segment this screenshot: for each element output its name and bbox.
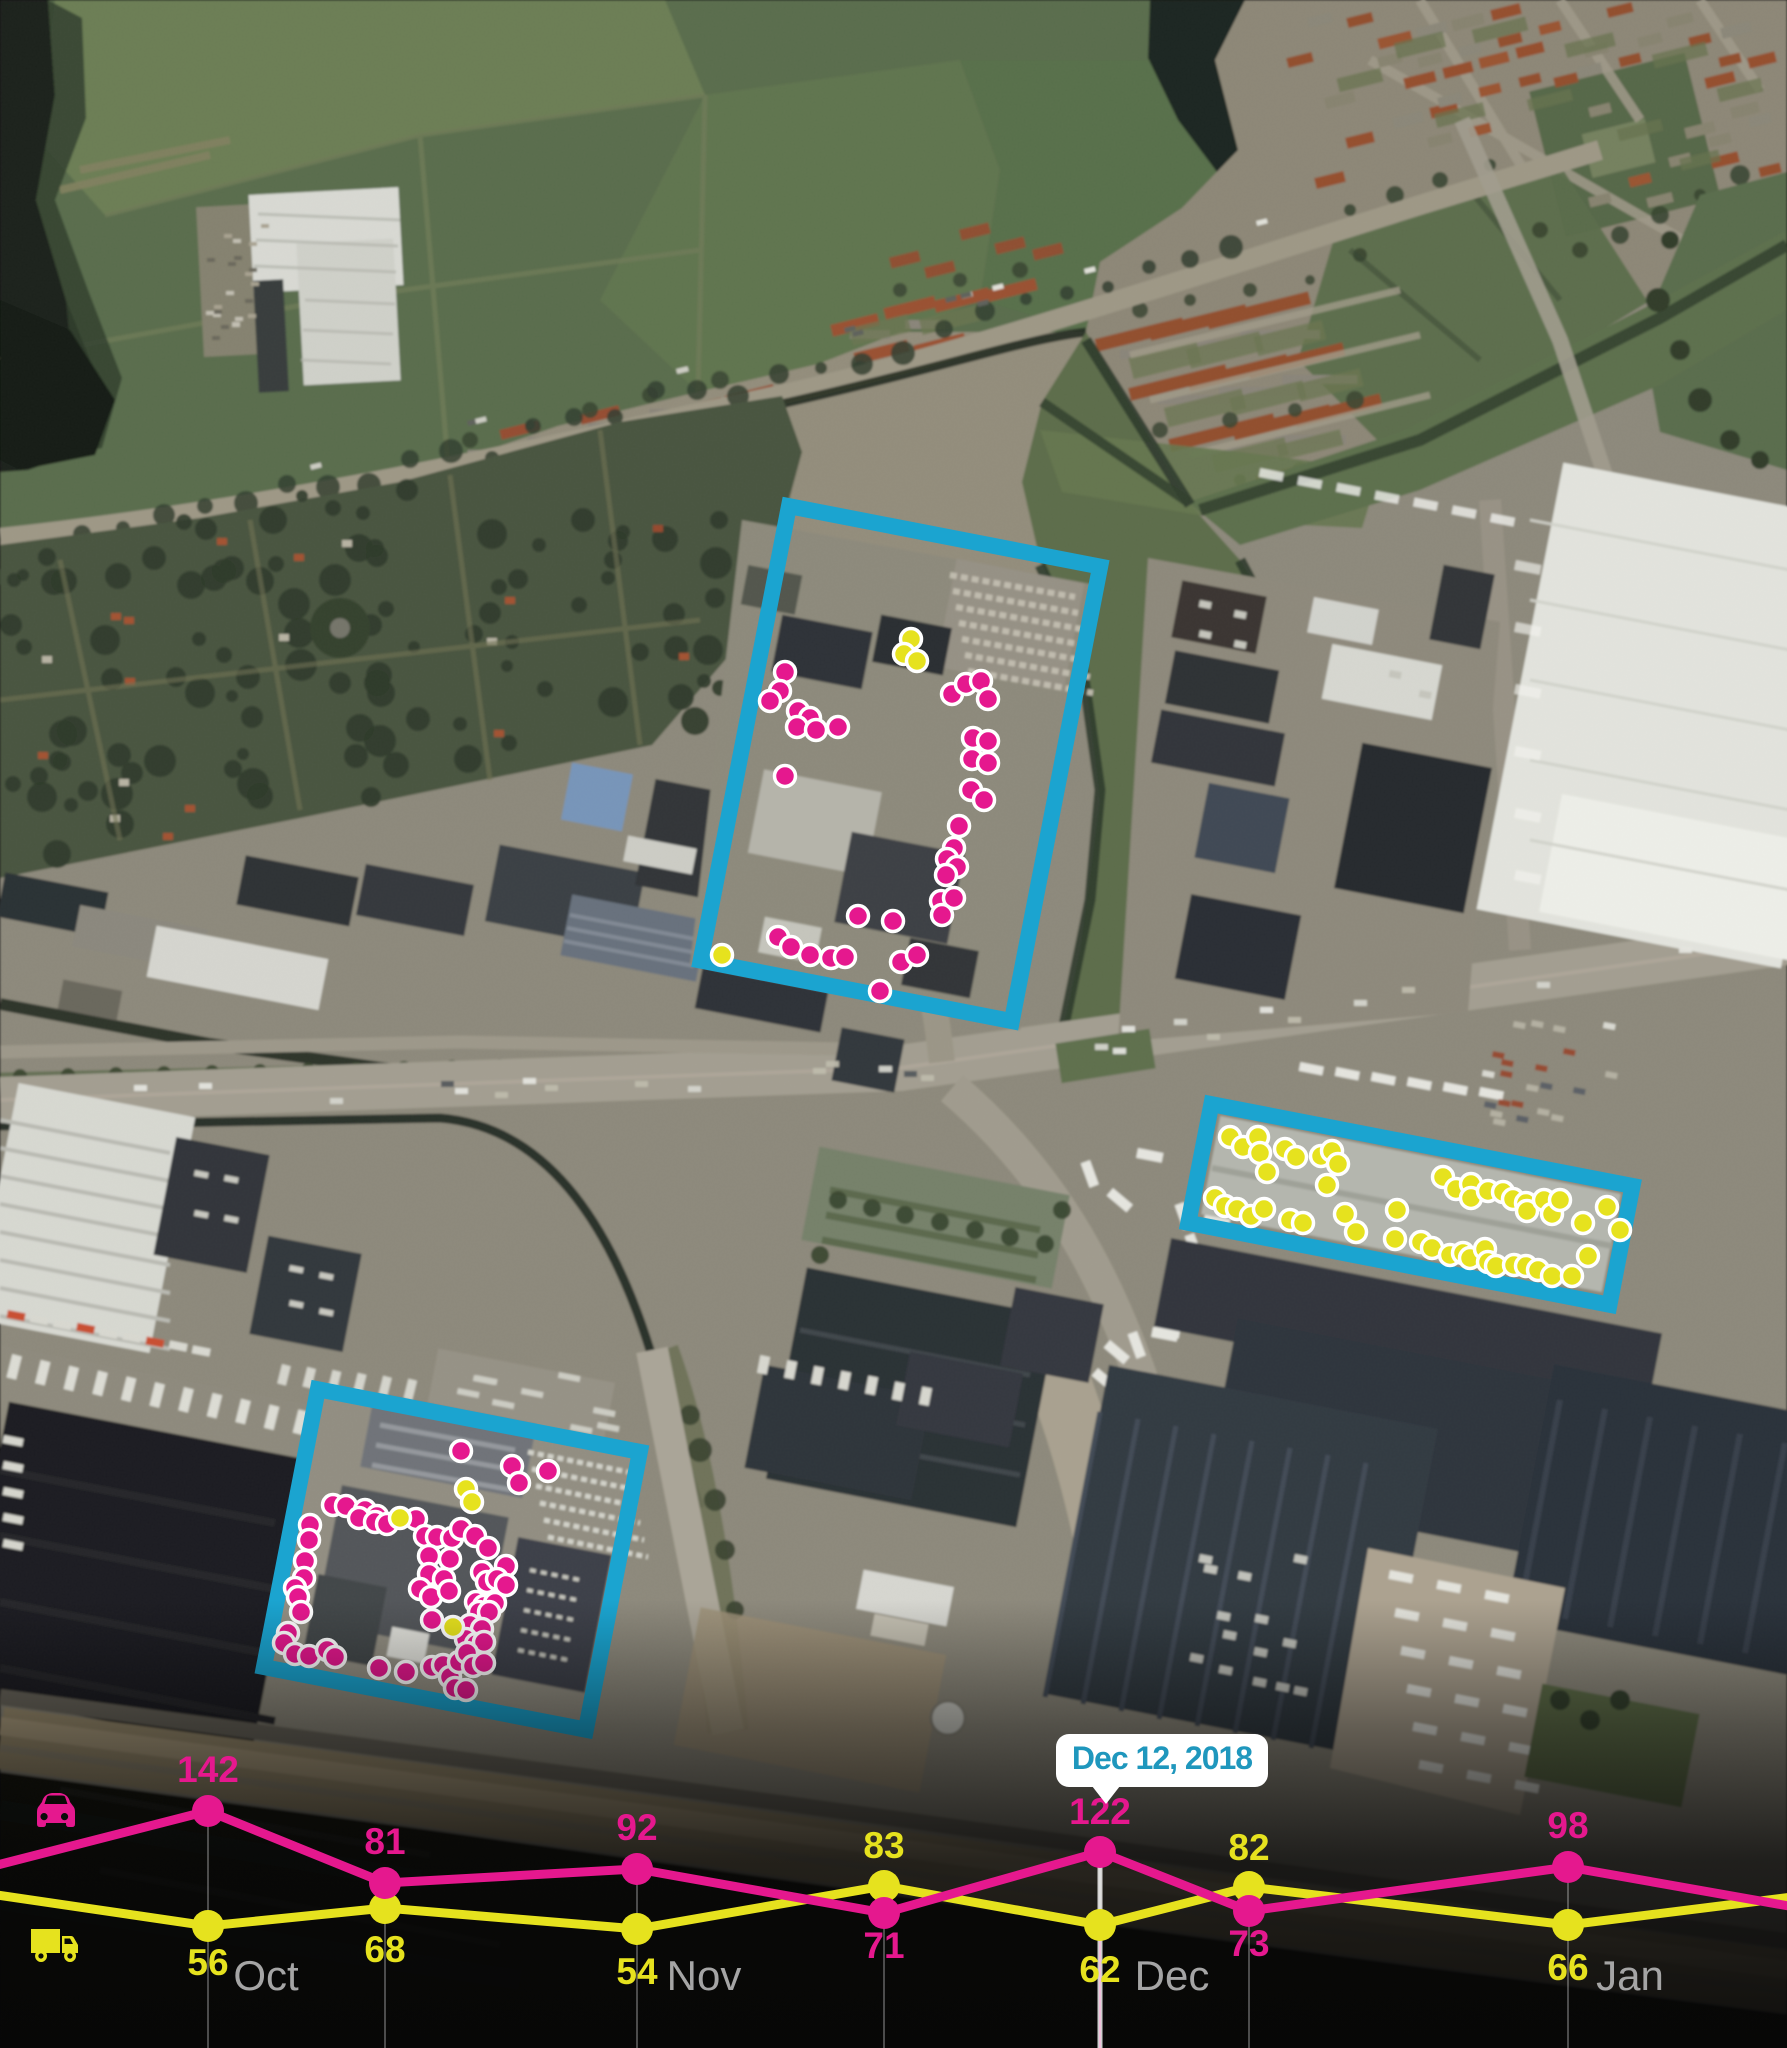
- svg-text:68: 68: [364, 1929, 405, 1970]
- svg-text:Dec 12, 2018: Dec 12, 2018: [1072, 1740, 1252, 1776]
- svg-text:62: 62: [1079, 1949, 1120, 1990]
- svg-text:122: 122: [1069, 1791, 1131, 1832]
- svg-text:Jan: Jan: [1596, 1952, 1664, 1999]
- svg-text:82: 82: [1228, 1827, 1269, 1868]
- svg-text:Oct: Oct: [233, 1952, 299, 1999]
- svg-text:73: 73: [1228, 1923, 1269, 1964]
- svg-text:142: 142: [177, 1749, 239, 1790]
- svg-text:Nov: Nov: [667, 1952, 742, 1999]
- svg-text:66: 66: [1547, 1947, 1588, 1988]
- svg-text:71: 71: [863, 1925, 904, 1966]
- svg-text:98: 98: [1547, 1805, 1588, 1846]
- svg-text:83: 83: [863, 1825, 904, 1866]
- svg-text:54: 54: [616, 1951, 658, 1992]
- svg-text:81: 81: [364, 1821, 405, 1862]
- svg-text:56: 56: [187, 1942, 228, 1983]
- svg-text:92: 92: [616, 1807, 657, 1848]
- svg-text:Dec: Dec: [1135, 1952, 1210, 1999]
